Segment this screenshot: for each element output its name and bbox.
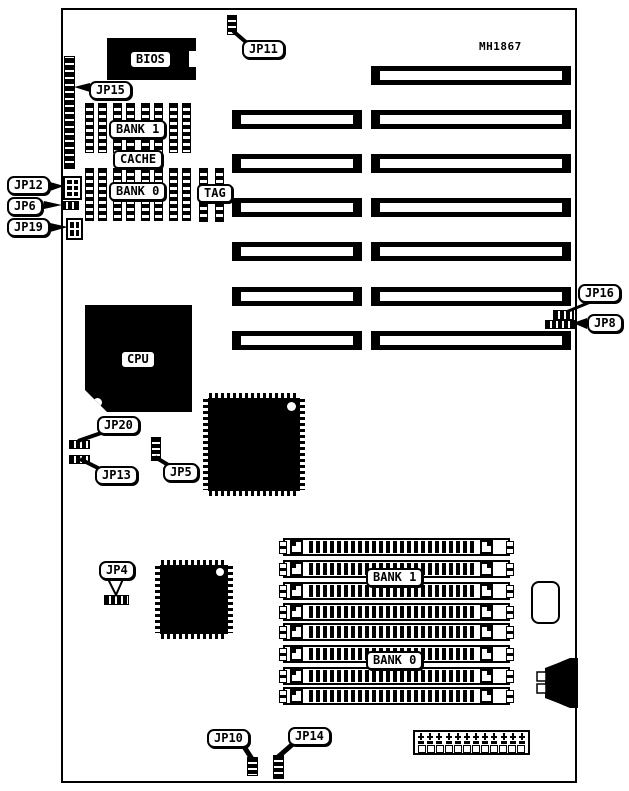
simm-end-cap	[506, 563, 514, 576]
power-pin-plus	[418, 733, 424, 740]
simm-bank0-label: BANK 0	[366, 651, 423, 670]
simm-socket	[283, 623, 510, 641]
qfp-body	[208, 398, 300, 491]
simm-socket	[283, 538, 510, 556]
simm-latch	[290, 625, 303, 639]
tag-chip	[199, 168, 224, 185]
jp15-pin-header	[64, 56, 75, 169]
jumper-pin	[74, 192, 79, 196]
qfp-pin1-dot	[216, 568, 224, 576]
simm-latch	[290, 540, 303, 554]
jp6-label: JP6	[7, 197, 43, 216]
simm-latch	[290, 562, 303, 576]
simm-end-cap	[279, 648, 287, 661]
simm-latch	[480, 669, 493, 683]
expansion-slot-long	[371, 154, 571, 173]
power-pin-socket	[454, 745, 462, 753]
simm-end-cap	[279, 541, 287, 554]
jp15-label: JP15	[89, 81, 132, 100]
jp4-jumper	[104, 595, 129, 605]
jp8-label: JP8	[587, 314, 623, 333]
jumper-pin	[67, 186, 72, 190]
expansion-slot-long	[371, 242, 571, 261]
jumper-pin	[67, 192, 72, 196]
power-pin-plus	[482, 733, 488, 740]
simm-latch	[480, 584, 493, 598]
motherboard-diagram: MH1867	[0, 0, 629, 791]
simm-contacts	[309, 670, 474, 682]
power-pin-dash	[427, 741, 433, 744]
simm-end-cap	[506, 670, 514, 683]
simm-latch	[290, 669, 303, 683]
cache-chip-bank0	[85, 168, 107, 221]
power-pin-dash	[473, 741, 479, 744]
board-model-text: MH1867	[479, 40, 522, 53]
simm-end-cap	[279, 690, 287, 703]
power-pin-plus	[427, 733, 433, 740]
jp20-label: JP20	[97, 416, 140, 435]
expansion-slot-short	[232, 198, 362, 217]
tag-label: TAG	[197, 184, 233, 203]
simm-latch	[480, 625, 493, 639]
power-pin-socket	[472, 745, 480, 753]
power-pin-dash	[510, 741, 516, 744]
simm-end-cap	[506, 585, 514, 598]
jumper-pin	[70, 222, 74, 228]
simm-latch	[290, 605, 303, 619]
expansion-slot-short	[232, 287, 362, 306]
power-pin-row	[418, 732, 525, 740]
chipset-qfp-large	[203, 393, 305, 496]
jumper-pin	[76, 222, 80, 228]
simm-latch	[480, 647, 493, 661]
jp11-label: JP11	[242, 40, 285, 59]
simm-contacts	[309, 690, 474, 702]
expansion-slot-long	[371, 198, 571, 217]
simm-latch	[480, 540, 493, 554]
simm-contacts	[309, 541, 474, 553]
jp14-jumper	[273, 755, 284, 779]
jp19-label: JP19	[7, 218, 50, 237]
power-pin-socket	[499, 745, 507, 753]
jp5-label: JP5	[163, 463, 199, 482]
simm-end-cap	[279, 626, 287, 639]
power-pin-socket	[490, 745, 498, 753]
power-pin-dash	[418, 741, 424, 744]
jp6-jumper	[61, 201, 79, 210]
jp10-label: JP10	[207, 729, 250, 748]
jp19-jumper-block	[66, 218, 83, 240]
simm-end-cap	[506, 541, 514, 554]
power-pin-plus	[464, 733, 470, 740]
power-pin-socket	[445, 745, 453, 753]
jp16-label: JP16	[578, 284, 621, 303]
power-pin-socket	[481, 745, 489, 753]
power-pin-plus	[510, 733, 516, 740]
power-pin-socket	[427, 745, 435, 753]
jp8-jumper	[545, 320, 575, 329]
power-pin-socket	[463, 745, 471, 753]
power-pin-plus	[455, 733, 461, 740]
expansion-slot-short	[232, 242, 362, 261]
battery-outline	[531, 581, 560, 624]
jumper-pin	[67, 180, 72, 184]
power-pin-dash	[446, 741, 452, 744]
expansion-slot-short	[232, 110, 362, 129]
expansion-slot-long	[371, 331, 571, 350]
jp10-jumper	[247, 757, 258, 776]
jp14-label: JP14	[288, 727, 331, 746]
power-connector	[413, 730, 530, 755]
jp13-label: JP13	[95, 466, 138, 485]
expansion-slot-long	[371, 66, 571, 85]
power-pin-dash	[491, 741, 497, 744]
power-pin-socket	[517, 745, 525, 753]
power-pin-dash	[464, 741, 470, 744]
tag-chip	[199, 202, 224, 222]
power-pin-dash	[436, 741, 442, 744]
expansion-slot-short	[232, 154, 362, 173]
jp11-jumper	[227, 15, 237, 35]
simm-bank1-label: BANK 1	[366, 568, 423, 587]
simm-socket	[283, 687, 510, 705]
power-pin-socket	[436, 745, 444, 753]
expansion-slot-long	[371, 110, 571, 129]
simm-latch	[480, 605, 493, 619]
cache-chip-bank0	[169, 168, 191, 221]
jp16-jumper	[553, 310, 574, 320]
power-pin-dash	[482, 741, 488, 744]
power-pin-plus	[446, 733, 452, 740]
power-pin-plus	[473, 733, 479, 740]
simm-end-cap	[279, 563, 287, 576]
simm-latch	[480, 689, 493, 703]
jp20-jumper	[69, 440, 90, 449]
power-pin-dash	[501, 741, 507, 744]
power-pin-plus	[519, 733, 525, 740]
expansion-slot-short	[232, 331, 362, 350]
simm-latch	[480, 562, 493, 576]
cache-chip-bank1	[85, 103, 107, 153]
simm-contacts	[309, 626, 474, 638]
power-pin-socket	[418, 745, 426, 753]
simm-socket	[283, 603, 510, 621]
bios-chip-notch	[189, 51, 197, 67]
jp13-jumper	[69, 455, 90, 464]
simm-end-cap	[279, 606, 287, 619]
simm-latch	[290, 647, 303, 661]
qfp-pin1-dot	[287, 402, 296, 411]
power-pin-dash	[519, 741, 525, 744]
cache-chip-bank1	[169, 103, 191, 153]
chipset-qfp-small	[155, 560, 233, 639]
cache-label: CACHE	[113, 150, 163, 169]
cache-bank1-label: BANK 1	[109, 120, 166, 139]
jumper-pin	[76, 230, 80, 236]
simm-end-cap	[506, 606, 514, 619]
jp12-label: JP12	[7, 176, 50, 195]
simm-latch	[290, 584, 303, 598]
power-pin-socket	[508, 745, 516, 753]
power-pin-row	[418, 744, 525, 753]
cache-bank0-label: BANK 0	[109, 182, 166, 201]
power-pin-plus	[436, 733, 442, 740]
jumper-pin	[74, 186, 79, 190]
power-pin-dash	[455, 741, 461, 744]
simm-end-cap	[279, 585, 287, 598]
simm-contacts	[309, 606, 474, 618]
expansion-slot-long	[371, 287, 571, 306]
jp12-jumper-block	[63, 176, 82, 200]
simm-end-cap	[506, 626, 514, 639]
jp5-jumper	[151, 437, 161, 461]
jumper-pin	[74, 180, 79, 184]
cpu-label: CPU	[120, 350, 156, 369]
power-pin-plus	[501, 733, 507, 740]
simm-end-cap	[506, 690, 514, 703]
power-pin-plus	[491, 733, 497, 740]
jp4-label: JP4	[99, 561, 135, 580]
simm-end-cap	[506, 648, 514, 661]
simm-end-cap	[279, 670, 287, 683]
simm-latch	[290, 689, 303, 703]
jumper-pin	[70, 230, 74, 236]
bios-label: BIOS	[129, 50, 172, 69]
